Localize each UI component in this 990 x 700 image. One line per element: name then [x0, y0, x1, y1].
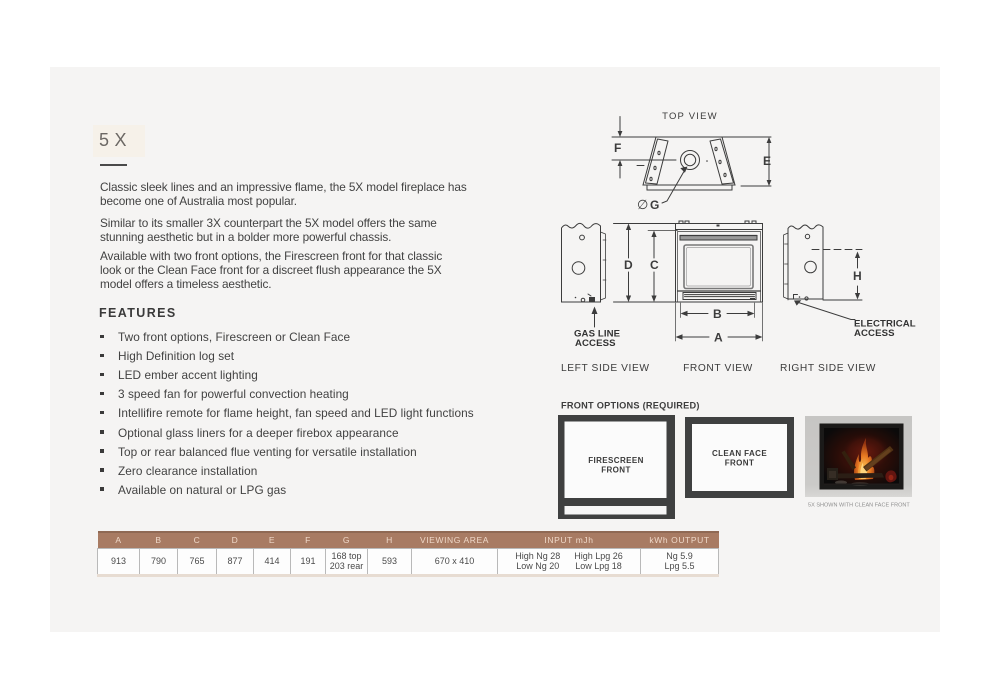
svg-text:FRONT VIEW: FRONT VIEW [683, 363, 753, 374]
svg-text:C: C [650, 258, 659, 272]
svg-text:ACCESS: ACCESS [575, 338, 616, 349]
svg-text:D: D [624, 258, 633, 272]
svg-text:∅: ∅ [637, 197, 648, 212]
svg-text:5X SHOWN WITH CLEAN FACE FRONT: 5X SHOWN WITH CLEAN FACE FRONT [808, 503, 910, 509]
svg-text:CLEAN FACE: CLEAN FACE [712, 449, 767, 458]
svg-text:FRONT: FRONT [725, 459, 755, 468]
svg-text:TOP VIEW: TOP VIEW [662, 111, 718, 122]
svg-text:B: B [713, 307, 722, 321]
svg-text:FIRESCREEN: FIRESCREEN [588, 456, 644, 465]
svg-text:RIGHT SIDE VIEW: RIGHT SIDE VIEW [780, 363, 876, 374]
svg-text:LEFT SIDE VIEW: LEFT SIDE VIEW [561, 363, 650, 374]
svg-text:A: A [714, 331, 723, 345]
svg-text:G: G [650, 198, 659, 212]
svg-text:FRONT OPTIONS (REQUIRED): FRONT OPTIONS (REQUIRED) [561, 401, 700, 411]
svg-text:E: E [763, 154, 771, 168]
svg-text:ACCESS: ACCESS [854, 328, 895, 339]
svg-text:H: H [853, 269, 862, 283]
svg-text:F: F [614, 141, 621, 155]
svg-text:FRONT: FRONT [601, 466, 631, 475]
